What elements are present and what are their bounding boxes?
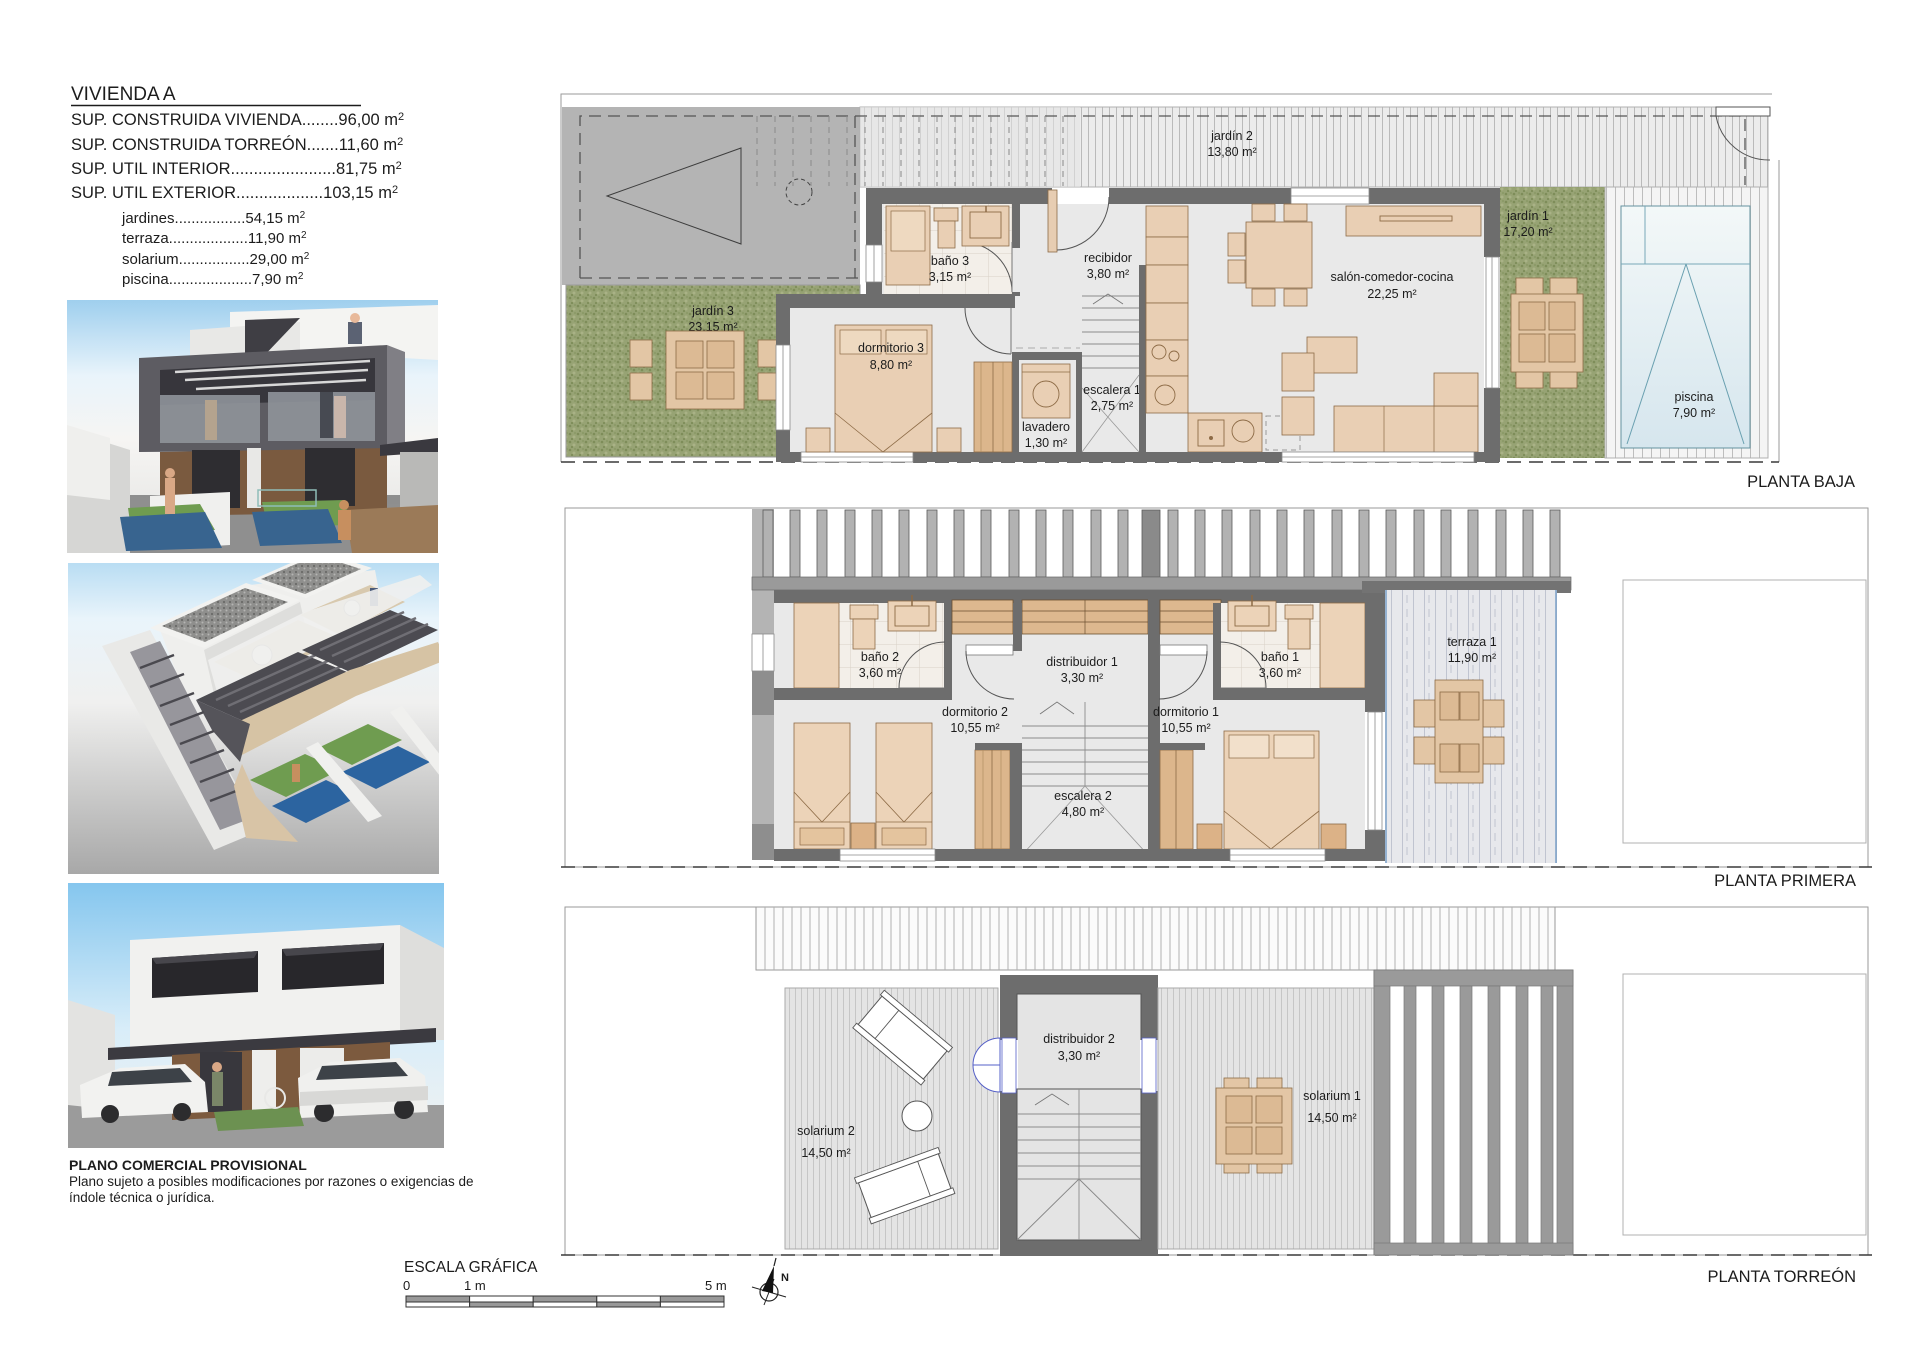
svg-text:3,30 m²: 3,30 m² [1061, 671, 1103, 685]
svg-text:PLANTA TORREÓN: PLANTA TORREÓN [1707, 1267, 1856, 1286]
svg-text:17,20 m²: 17,20 m² [1503, 225, 1552, 239]
svg-text:baño 1: baño 1 [1261, 650, 1299, 664]
svg-text:10,55 m²: 10,55 m² [1161, 721, 1210, 735]
svg-text:SUP. CONSTRUIDA VIVIENDA......: SUP. CONSTRUIDA VIVIENDA........96,00 m2 [71, 111, 404, 129]
svg-text:jardín 2: jardín 2 [1210, 129, 1253, 143]
svg-text:recibidor: recibidor [1084, 251, 1132, 265]
svg-text:PLANO COMERCIAL PROVISIONAL: PLANO COMERCIAL PROVISIONAL [69, 1157, 307, 1173]
svg-text:1,30 m²: 1,30 m² [1025, 436, 1067, 450]
svg-text:índole técnica o jurídica.: índole técnica o jurídica. [69, 1190, 215, 1205]
svg-text:piscina: piscina [1675, 390, 1714, 404]
svg-text:escalera 2: escalera 2 [1054, 789, 1112, 803]
svg-text:N: N [781, 1272, 789, 1284]
svg-text:baño 3: baño 3 [931, 254, 969, 268]
svg-text:11,90 m²: 11,90 m² [1448, 651, 1496, 665]
svg-text:7,90 m²: 7,90 m² [1673, 406, 1715, 420]
svg-text:0: 0 [403, 1278, 410, 1293]
svg-text:solarium 2: solarium 2 [797, 1124, 855, 1138]
svg-text:distribuidor 2: distribuidor 2 [1043, 1032, 1115, 1046]
svg-text:solarium.................29,00: solarium.................29,00 m2 [122, 251, 310, 268]
svg-text:PLANTA PRIMERA: PLANTA PRIMERA [1714, 872, 1856, 890]
svg-text:piscina....................7,9: piscina....................7,90 m2 [122, 271, 304, 288]
svg-text:lavadero: lavadero [1022, 420, 1070, 434]
svg-text:Plano sujeto a posibles modifi: Plano sujeto a posibles modificaciones p… [69, 1174, 474, 1189]
svg-text:dormitorio 1: dormitorio 1 [1153, 705, 1219, 719]
svg-text:ESCALA GRÁFICA: ESCALA GRÁFICA [404, 1259, 538, 1276]
svg-text:SUP. UTIL EXTERIOR............: SUP. UTIL EXTERIOR...................103… [71, 184, 398, 202]
svg-text:jardín 3: jardín 3 [691, 304, 734, 318]
svg-text:baño 2: baño 2 [861, 650, 899, 664]
svg-text:PLANTA BAJA: PLANTA BAJA [1747, 473, 1855, 491]
svg-text:solarium 1: solarium 1 [1303, 1089, 1361, 1103]
svg-text:3,80 m²: 3,80 m² [1087, 267, 1129, 281]
svg-text:SUP. UTIL INTERIOR............: SUP. UTIL INTERIOR......................… [71, 160, 402, 178]
svg-text:3,60 m²: 3,60 m² [859, 666, 901, 680]
svg-text:dormitorio 3: dormitorio 3 [858, 341, 924, 355]
svg-text:salón-comedor-cocina: salón-comedor-cocina [1331, 270, 1454, 284]
svg-text:8,80 m²: 8,80 m² [870, 358, 912, 372]
svg-text:10,55 m²: 10,55 m² [950, 721, 999, 735]
svg-text:VIVIENDA A: VIVIENDA A [71, 84, 176, 105]
svg-text:jardín 1: jardín 1 [1506, 209, 1549, 223]
svg-text:5 m: 5 m [705, 1278, 727, 1293]
svg-text:terraza 1: terraza 1 [1447, 635, 1496, 649]
svg-text:14,50 m²: 14,50 m² [1307, 1111, 1356, 1125]
svg-text:jardines.................54,15: jardines.................54,15 m2 [121, 210, 306, 227]
svg-text:terraza...................11,9: terraza...................11,90 m2 [122, 230, 307, 247]
svg-text:distribuidor 1: distribuidor 1 [1046, 655, 1118, 669]
svg-text:3,30 m²: 3,30 m² [1058, 1049, 1100, 1063]
svg-text:2,75 m²: 2,75 m² [1091, 399, 1133, 413]
svg-text:4,80 m²: 4,80 m² [1062, 805, 1104, 819]
svg-text:3,15 m²: 3,15 m² [929, 270, 971, 284]
svg-text:escalera 1: escalera 1 [1083, 383, 1141, 397]
svg-text:1 m: 1 m [464, 1278, 486, 1293]
svg-text:SUP. CONSTRUIDA TORREÓN.......: SUP. CONSTRUIDA TORREÓN.......11,60 m2 [71, 135, 403, 154]
svg-text:13,80 m²: 13,80 m² [1207, 145, 1256, 159]
svg-text:dormitorio 2: dormitorio 2 [942, 705, 1008, 719]
svg-text:22,25 m²: 22,25 m² [1367, 287, 1416, 301]
svg-text:14,50 m²: 14,50 m² [801, 1146, 850, 1160]
